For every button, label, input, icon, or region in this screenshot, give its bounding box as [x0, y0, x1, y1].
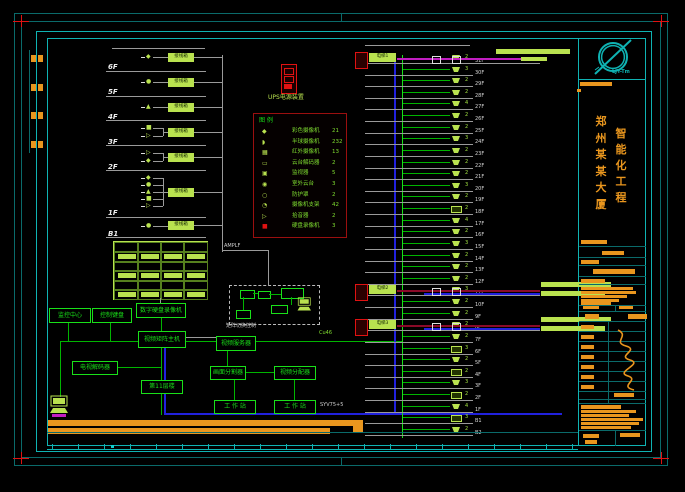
legend-item-count: 5 — [332, 171, 336, 177]
signature-scribble — [610, 326, 646, 394]
floor-line — [365, 377, 473, 378]
revision-mark — [38, 55, 43, 62]
legend-item-name: 红外摄像机 — [292, 150, 320, 156]
elevator-camera-panel — [355, 319, 368, 336]
fixed-camera-icon — [451, 369, 462, 376]
panel-bar — [577, 89, 581, 92]
riser-floor-label: 5F — [475, 361, 481, 366]
riser-floor-label: 2F — [475, 396, 481, 401]
wire — [268, 250, 269, 285]
camera-count: 2 — [465, 148, 468, 153]
floor-line — [106, 71, 206, 72]
title-block-bar — [581, 414, 629, 417]
camera-branch — [403, 92, 450, 93]
elevator-label: 电梯3 — [369, 320, 396, 329]
tv-wall-screen — [164, 292, 182, 297]
device-tick — [141, 153, 145, 154]
wire — [194, 82, 222, 83]
tv-wall-screen — [164, 254, 182, 259]
camera-count: 2 — [465, 160, 468, 165]
riser-floor-label: 20F — [475, 187, 484, 192]
border-centre-tick — [341, 457, 342, 466]
riser-floor-label: 21F — [475, 175, 484, 180]
project-name-char: 能 — [615, 144, 627, 155]
fixed-camera-icon — [451, 206, 462, 213]
camera-branch — [403, 150, 450, 151]
floor-line — [365, 423, 473, 424]
camera-count: 2 — [465, 276, 468, 281]
wire — [244, 372, 274, 373]
title-panel-divider — [578, 38, 579, 446]
legend-item-count: 2 — [332, 214, 336, 220]
wire — [194, 107, 222, 108]
wire — [153, 178, 163, 179]
project-name-char: 程 — [615, 192, 627, 203]
title-block-bar — [581, 365, 594, 369]
floor-line — [365, 202, 473, 203]
video-cable-label: SYV75+5 — [320, 403, 343, 408]
camera-device-icon: ● — [146, 223, 151, 229]
title-block-line — [579, 403, 646, 404]
floor-line — [365, 261, 473, 262]
camera-branch — [403, 162, 450, 163]
riser-floor-label: 14F — [475, 257, 484, 262]
legend-item-count: 42 — [332, 203, 339, 209]
camera-branch — [403, 313, 450, 314]
camera-branch — [403, 278, 450, 279]
floor-line — [106, 145, 206, 146]
ruler-tick — [182, 444, 183, 449]
riser-floor-label: B1 — [475, 419, 482, 424]
title-block-bar — [619, 306, 633, 309]
device-tick — [141, 128, 145, 129]
project-name-char: 化 — [615, 160, 627, 171]
camera-count: 2 — [465, 369, 468, 374]
ruler-tick — [156, 444, 157, 449]
revision-mark — [38, 112, 43, 119]
connector — [432, 56, 441, 64]
dvr-icon: ■ — [262, 224, 268, 230]
camera-device-icon: ▷ — [146, 203, 151, 209]
device-tick — [141, 178, 145, 179]
elevator-video-line — [397, 325, 540, 327]
wire — [60, 341, 61, 397]
title-block-bar — [628, 314, 647, 319]
floor-line — [365, 45, 470, 46]
wire — [161, 316, 162, 331]
riser-floor-label: 22F — [475, 164, 484, 169]
riser-floor-label: 18F — [475, 210, 484, 215]
ups-label: UPS电源装置 — [268, 95, 304, 101]
camera-branch — [403, 231, 450, 232]
registration-cross — [661, 452, 662, 464]
riser-floor-label: 10F — [475, 303, 484, 308]
camera-device-icon: ■ — [146, 125, 152, 131]
floor-line — [365, 342, 473, 343]
riser-floor-label: 25F — [475, 129, 484, 134]
floor-line — [106, 237, 206, 238]
wire — [222, 250, 268, 251]
camera-count: 4 — [465, 218, 468, 223]
connector — [452, 323, 461, 331]
legend-item-count: 2 — [332, 161, 336, 167]
ws-base — [52, 414, 66, 417]
riser-floor-label: 30F — [475, 71, 484, 76]
title-block-line — [579, 284, 646, 285]
camera-device-icon: ▷ — [146, 133, 151, 139]
wire — [153, 199, 163, 200]
box-decoder: 电视解码器 — [72, 361, 118, 375]
legend-item-name: 硬盘录像机 — [292, 224, 320, 230]
green-riser-bus — [402, 55, 403, 438]
floor-line — [365, 168, 473, 169]
camera-branch — [403, 115, 450, 116]
title-block-line — [579, 257, 646, 258]
tv-wall-cell — [160, 289, 185, 300]
camera-branch — [403, 371, 450, 372]
wire — [153, 57, 168, 58]
wire — [608, 321, 609, 403]
camera-count: 2 — [465, 392, 468, 397]
title-block-bar — [581, 260, 599, 264]
title-block-bar — [593, 269, 635, 274]
camera-branch — [403, 173, 450, 174]
bracket-icon: ◔ — [262, 203, 267, 209]
legend-item-count: 21 — [332, 129, 339, 135]
wire — [294, 378, 295, 400]
junction-box: 接线箱 — [168, 221, 194, 230]
camera-count: 2 — [465, 357, 468, 362]
device-tick — [141, 199, 145, 200]
riser-floor-label: 4F — [475, 373, 481, 378]
camera-branch — [403, 185, 450, 186]
registration-cross — [21, 452, 22, 464]
legend-box: 图 例 ◆彩色摄像机21◗半球摄像机232▦红外摄像机13▭云台解码器2▣监视器… — [253, 113, 347, 238]
title-block-bar — [581, 335, 594, 339]
title-block-bar — [581, 355, 594, 359]
left-riser-bus — [222, 55, 223, 252]
title-block-bar — [602, 251, 624, 255]
elevator-camera-panel — [355, 284, 368, 301]
title-block-bar — [581, 240, 607, 244]
camera-count: 2 — [465, 229, 468, 234]
tv-wall-screen — [118, 254, 136, 259]
camera-count: 3 — [465, 415, 468, 420]
title-block-bar — [581, 345, 594, 349]
camera-branch — [403, 243, 450, 244]
building-name-char: 某 — [595, 149, 607, 160]
wire — [153, 153, 163, 154]
ruler-tick — [572, 444, 573, 449]
box-video_server: 视频服务器 — [216, 336, 256, 351]
ruler-tick — [364, 444, 365, 449]
amplifier-label: AMPLF — [224, 244, 240, 249]
junction-box: 接线箱 — [168, 153, 194, 162]
fixed-camera-icon — [451, 392, 462, 399]
title-block-bar — [581, 287, 633, 290]
title-block-bar — [620, 433, 640, 437]
camera-device-icon: ● — [146, 79, 151, 85]
ruler-tick — [52, 444, 53, 449]
floor-line — [365, 214, 473, 215]
floor-label: 1F — [108, 210, 118, 217]
floor-line — [365, 98, 473, 99]
cad-sheet[interactable]: LJY-Tm UPS电源装置 图 例 ◆彩色摄像机21◗半球摄像机232▦红外摄… — [0, 0, 685, 492]
title-block-line — [579, 399, 646, 400]
riser-floor-label: 27F — [475, 105, 484, 110]
floor-line — [365, 307, 473, 308]
riser-floor-label: 6F — [475, 350, 481, 355]
building-name-char: 州 — [595, 133, 607, 144]
camera-branch — [403, 359, 450, 360]
title-block-bar — [581, 325, 594, 329]
fixed-camera-icon — [451, 346, 462, 353]
margin-line — [29, 50, 30, 153]
camera-branch — [403, 69, 450, 70]
riser-floor-label: 7F — [475, 338, 481, 343]
camera-device-icon: ◆ — [146, 158, 151, 164]
camera-count: 3 — [465, 380, 468, 385]
floor-line — [365, 365, 473, 366]
ruler-tick — [286, 444, 287, 449]
ruler-tick — [468, 444, 469, 449]
junction-box: 接线箱 — [168, 128, 194, 137]
device-tick — [141, 82, 145, 83]
tv-wall-screen — [187, 273, 205, 278]
riser-floor-label: 3F — [475, 384, 481, 389]
tv-wall-cell — [137, 289, 162, 300]
operator-workstation-icon — [48, 395, 70, 415]
camera-count: 2 — [465, 206, 468, 211]
floor-line — [365, 272, 473, 273]
riser-floor-label: 1F — [475, 408, 481, 413]
wire — [68, 321, 69, 341]
building-name-char: 大 — [595, 182, 607, 193]
wire — [194, 225, 222, 226]
wire — [615, 305, 616, 312]
wire — [194, 192, 222, 193]
connector — [432, 323, 441, 331]
wire — [153, 226, 168, 227]
device-tick — [141, 161, 145, 162]
floor-line — [365, 400, 473, 401]
title-block-line — [579, 321, 646, 322]
camera-count: 2 — [465, 113, 468, 118]
riser-floor-label: 19F — [475, 198, 484, 203]
tv-wall-cell — [183, 289, 208, 300]
camera-device-icon: ▲ — [146, 104, 151, 110]
tv-wall-screen — [141, 273, 159, 278]
switcher-module — [271, 305, 288, 314]
camera-device-icon: ◆ — [146, 54, 151, 60]
floor-line — [365, 191, 473, 192]
camera-branch — [403, 103, 450, 104]
floor-line — [365, 435, 473, 436]
floor-line — [365, 133, 473, 134]
camera-device-icon: ▷ — [146, 150, 151, 156]
floor-line — [106, 120, 206, 121]
title-block-line — [579, 265, 646, 266]
box-keyboard: 控制键盘 — [92, 308, 132, 323]
camera-branch — [403, 266, 450, 267]
floor-line — [365, 412, 473, 413]
camera-count: 3 — [465, 67, 468, 72]
tv-wall-screen — [164, 273, 182, 278]
legend-item-count: 232 — [332, 140, 343, 146]
tv-wall-screen — [187, 254, 205, 259]
riser-floor-label: 24F — [475, 140, 484, 145]
title-block-bar — [583, 434, 599, 438]
ups-cabinet-icon — [281, 64, 297, 94]
device-tick — [141, 226, 145, 227]
tv-wall-screen — [118, 273, 136, 278]
camera-branch — [403, 348, 450, 349]
device-tick — [141, 192, 145, 193]
title-block-bar — [581, 385, 594, 389]
ruler-tick — [416, 444, 417, 449]
switcher-module — [236, 310, 251, 319]
right-bar — [521, 57, 547, 61]
floor-line — [365, 75, 473, 76]
housing-icon: ○ — [262, 193, 267, 199]
right-bar — [496, 49, 570, 54]
floor-line — [106, 96, 206, 97]
legend-item-count: 3 — [332, 182, 336, 188]
trunk-cable-label: Cu46 — [319, 331, 332, 336]
wire — [153, 107, 168, 108]
blue-riser-bus — [394, 57, 396, 415]
wire — [153, 192, 163, 193]
ruler-tick — [312, 444, 313, 449]
junction-box: 接线箱 — [168, 53, 194, 62]
wire — [269, 294, 281, 295]
camera-count: 4 — [465, 404, 468, 409]
camera-count: 2 — [465, 125, 468, 130]
riser-floor-label: 12F — [475, 280, 484, 285]
ruler-tick — [390, 444, 391, 449]
camera-branch — [403, 138, 450, 139]
ruler-top-line — [47, 432, 578, 433]
floor-line — [365, 109, 473, 110]
registration-cross — [661, 15, 662, 27]
riser-floor-label: 9F — [475, 315, 481, 320]
camera-branch — [403, 127, 450, 128]
riser-floor-label: 29F — [475, 82, 484, 87]
connector — [452, 56, 461, 64]
box-matrix: 视频矩阵主机 — [138, 331, 186, 348]
title-block-line — [579, 311, 646, 312]
revision-mark — [31, 141, 36, 148]
title-block-line — [579, 430, 646, 431]
switcher-module — [258, 291, 271, 299]
camera-count: 2 — [465, 171, 468, 176]
ruler-tick — [442, 444, 443, 449]
tv-wall-cell — [114, 289, 139, 300]
legend-item-name: 室外云台 — [292, 182, 314, 188]
floor-line — [365, 354, 473, 355]
switcher-pc-icon — [296, 297, 313, 312]
floor-line — [365, 388, 473, 389]
camera-count: 2 — [465, 311, 468, 316]
legend-item-count: 3 — [332, 224, 336, 230]
tv-wall-screen — [187, 292, 205, 297]
box-splitter: 画面分割器 — [210, 366, 246, 380]
project-name-char: 智 — [615, 128, 627, 139]
legend-header: 图 例 — [259, 118, 273, 124]
camera-branch — [403, 382, 450, 383]
box-monitor_center: 监控中心 — [49, 308, 91, 323]
title-block-bar — [581, 375, 594, 379]
box-distributor: 视频分配器 — [274, 366, 316, 380]
logo-cell-line — [578, 79, 646, 80]
note-bar — [48, 420, 358, 426]
device-tick — [141, 136, 145, 137]
title-block-bar — [585, 440, 597, 444]
box-ws2: 工 作 站 — [274, 400, 316, 414]
floor-line — [365, 144, 473, 145]
building-name-char: 厦 — [595, 199, 607, 210]
title-block-bar — [581, 302, 611, 305]
floor-line — [365, 249, 473, 250]
camera-count: 2 — [465, 78, 468, 83]
connector — [452, 288, 461, 296]
elevator-data-line — [424, 328, 540, 330]
junction-box: 接线箱 — [168, 103, 194, 112]
wire — [194, 157, 222, 158]
riser-floor-label: 13F — [475, 268, 484, 273]
title-block-bar — [581, 279, 605, 283]
camera-branch — [403, 406, 450, 407]
legend-item-name: 半球摄像机 — [292, 140, 320, 146]
floor-line — [365, 179, 473, 180]
legend-item-name: 拾音器 — [292, 214, 309, 220]
riser-floor-label: 28F — [475, 94, 484, 99]
wire — [161, 392, 162, 415]
revision-mark — [38, 141, 43, 148]
elevator-label: 电梯2 — [369, 285, 396, 294]
wire — [161, 346, 162, 380]
border-centre-tick — [341, 13, 342, 22]
ir-camera-icon: ▦ — [262, 150, 268, 156]
wire — [110, 321, 111, 341]
ruler-tick — [546, 444, 547, 449]
title-block-bar — [585, 314, 599, 319]
revision-mark — [31, 55, 36, 62]
camera-icon: ◆ — [262, 129, 267, 135]
wire — [153, 136, 163, 137]
wire — [615, 430, 616, 446]
title-block-bar — [581, 410, 636, 413]
wire — [291, 297, 292, 305]
floor-line — [365, 121, 473, 122]
floor-line — [365, 156, 473, 157]
camera-count: 3 — [465, 136, 468, 141]
floor-label: 6F — [108, 64, 118, 71]
mic-icon: ▷ — [262, 214, 267, 220]
wire — [194, 57, 222, 58]
monitor-icon: ▣ — [262, 171, 268, 177]
ruler-tick — [520, 444, 521, 449]
tv-wall-screen — [118, 292, 136, 297]
device-tick — [141, 57, 145, 58]
floor-line — [365, 226, 473, 227]
ruler-tick — [208, 444, 209, 449]
legend-item-name: 监视器 — [292, 171, 309, 177]
device-tick — [141, 185, 145, 186]
building-name-char: 郑 — [595, 116, 607, 127]
ruler-tick — [260, 444, 261, 449]
revision-mark — [31, 84, 36, 91]
